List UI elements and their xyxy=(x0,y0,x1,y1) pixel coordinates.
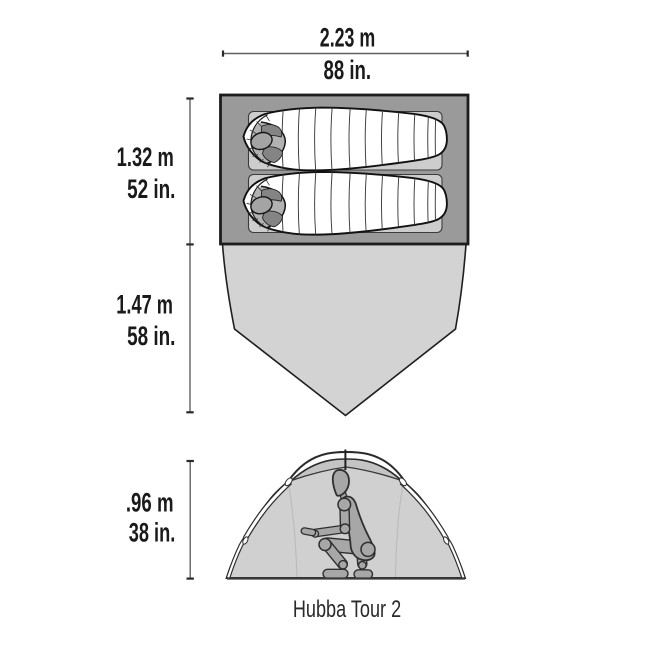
svg-text:38 in.: 38 in. xyxy=(129,517,176,547)
svg-text:58 in.: 58 in. xyxy=(127,321,175,351)
svg-text:52 in.: 52 in. xyxy=(127,174,175,204)
svg-text:88 in.: 88 in. xyxy=(323,55,371,85)
svg-text:.96 m: .96 m xyxy=(126,487,174,517)
svg-text:1.32 m: 1.32 m xyxy=(117,141,174,171)
svg-text:Hubba Tour 2: Hubba Tour 2 xyxy=(293,595,401,622)
svg-text:1.47 m: 1.47 m xyxy=(116,289,173,319)
svg-text:2.23 m: 2.23 m xyxy=(320,22,375,53)
